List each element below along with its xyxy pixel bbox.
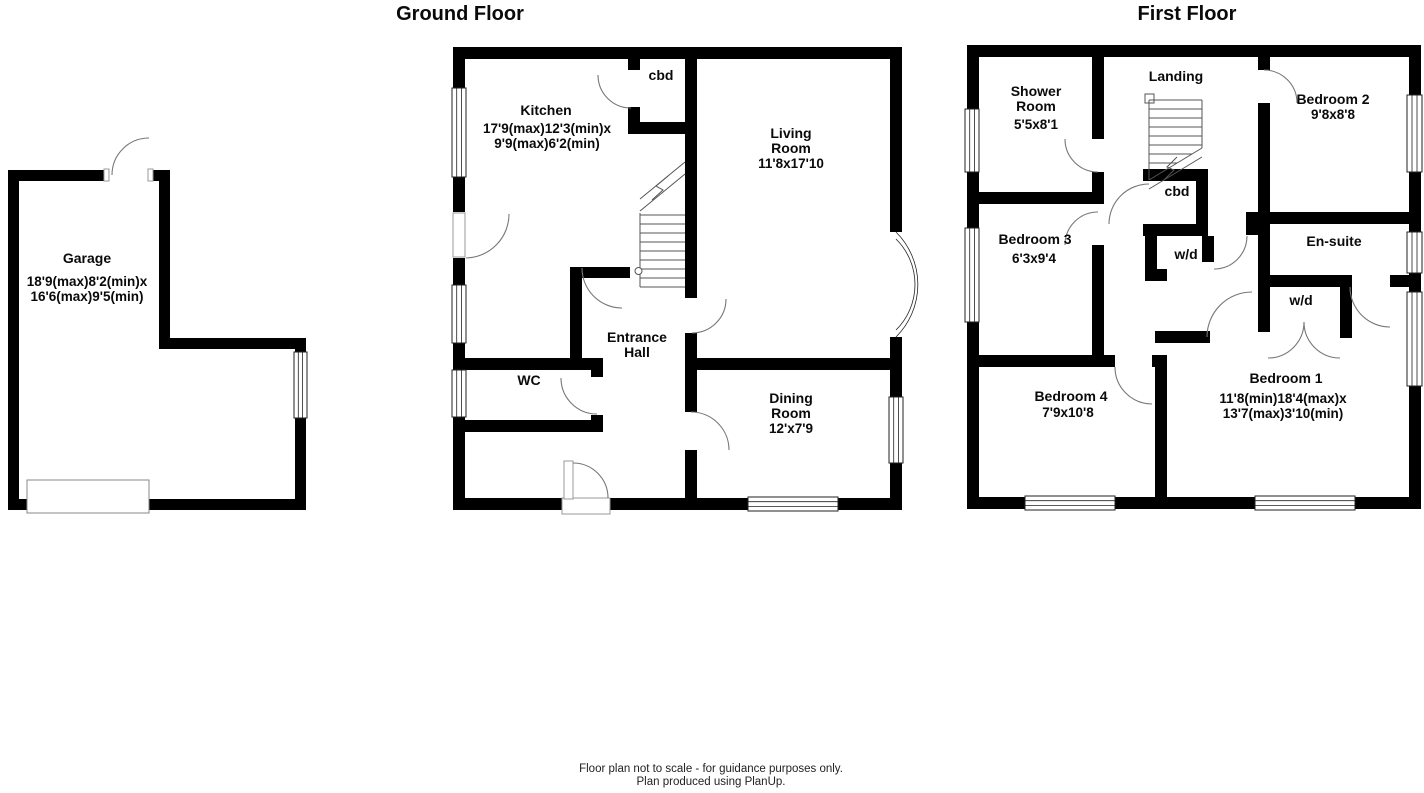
door-arc-front-door — [573, 463, 608, 498]
ground-floor-plan: Kitchen 17'9(max)12'3(min)x 9'9(max)6'2(… — [452, 47, 918, 514]
door-arc-living-room — [692, 299, 726, 333]
window — [889, 397, 903, 463]
door-arc-cbd — [598, 75, 631, 108]
living-room-dims: 11'8x17'10 — [758, 156, 824, 171]
window — [1255, 496, 1355, 510]
window — [965, 228, 979, 322]
garage-walls — [8, 170, 306, 510]
door-arc-ensuite — [1350, 287, 1390, 327]
dining-room-label-1: Dining — [769, 390, 813, 406]
stair-newel — [635, 268, 642, 275]
window — [748, 497, 838, 511]
ensuite-label: En-suite — [1306, 233, 1361, 249]
wd-landing-label: w/d — [1173, 246, 1197, 262]
door-arc-cbd-first — [1109, 184, 1149, 224]
door-arc-side-entrance — [466, 214, 509, 258]
garage-label: Garage — [63, 250, 111, 266]
door-jamb — [148, 169, 153, 181]
garage-dims-1: 18'9(max)8'2(min)x — [27, 274, 148, 289]
door-arc-wc — [561, 378, 597, 414]
door-arc-bedroom2 — [1264, 70, 1297, 103]
window — [452, 88, 466, 177]
bedroom3-label: Bedroom 3 — [998, 231, 1071, 247]
door-arc-bedroom1 — [1207, 292, 1252, 337]
dining-room-dims: 12'x7'9 — [769, 421, 813, 436]
bedroom4-dims: 7'9x10'8 — [1042, 405, 1094, 420]
window — [1407, 95, 1422, 172]
first-floor-title: First Floor — [1138, 3, 1237, 25]
bedroom1-dims-2: 13'7(max)3'10(min) — [1223, 406, 1343, 421]
entrance-hall-label-1: Entrance — [607, 329, 667, 345]
footer-credit: Plan produced using PlanUp. — [637, 776, 786, 788]
stair-direction-break — [652, 176, 668, 200]
window — [1025, 496, 1115, 510]
window — [294, 352, 307, 418]
bedroom1-dims-1: 11'8(min)18'4(max)x — [1219, 391, 1347, 406]
dining-room-label-2: Room — [771, 405, 811, 421]
garage-vehicle-door — [27, 480, 149, 513]
shower-room-label-1: Shower — [1011, 83, 1062, 99]
bedroom1-label: Bedroom 1 — [1249, 370, 1322, 386]
window — [452, 370, 466, 417]
garage-door-opening — [107, 169, 151, 182]
first-floor-plan: Landing Shower Room 5'5x8'1 Bedroom 2 9'… — [965, 45, 1422, 510]
wc-label: WC — [517, 372, 540, 388]
bedroom2-dims: 9'8x8'8 — [1311, 107, 1355, 122]
front-door-leaf — [564, 461, 573, 499]
footer-disclaimer: Floor plan not to scale - for guidance p… — [579, 763, 843, 775]
garage-plan: Garage 18'9(max)8'2(min)x 16'6(max)9'5(m… — [8, 138, 307, 513]
ground-floor-title: Ground Floor — [396, 3, 524, 25]
cbd-label: cbd — [649, 67, 674, 83]
bedroom3-dims: 6'3x9'4 — [1012, 251, 1056, 266]
entrance-hall-label-2: Hall — [624, 344, 650, 360]
kitchen-label: Kitchen — [520, 102, 571, 118]
door-jamb — [104, 169, 109, 181]
bedroom2-label: Bedroom 2 — [1296, 91, 1369, 107]
shower-room-dims: 5'5x8'1 — [1014, 117, 1058, 132]
cbd-first-label: cbd — [1165, 183, 1190, 199]
window — [965, 109, 979, 172]
door-arc-shower-room — [1065, 139, 1098, 172]
living-room-label-1: Living — [770, 125, 811, 141]
shower-room-label-2: Room — [1016, 98, 1056, 114]
kitchen-dims-2: 9'9(max)6'2(min) — [494, 136, 599, 151]
side-door-leaf — [453, 213, 465, 257]
bedroom4-label: Bedroom 4 — [1034, 388, 1107, 404]
door-arc-wd-bifold-left — [1268, 322, 1304, 358]
window — [452, 285, 466, 343]
bay-window — [888, 232, 918, 337]
landing-label: Landing — [1149, 68, 1203, 84]
wd-bedroom1-label: w/d — [1288, 292, 1312, 308]
door-arc-wd-bifold-right — [1304, 322, 1340, 358]
staircase-ground-floor — [635, 162, 685, 287]
window — [1407, 292, 1422, 386]
kitchen-dims-1: 17'9(max)12'3(min)x — [483, 121, 611, 136]
door-arc-bedroom4 — [1115, 367, 1152, 404]
door-arc-dining-room — [691, 412, 729, 450]
front-porch — [562, 498, 610, 514]
garage-dims-2: 16'6(max)9'5(min) — [31, 289, 144, 304]
floor-plan-image: Ground Floor First Floor Garage 18'9(max… — [0, 0, 1424, 793]
door-arc-wd-landing — [1214, 236, 1247, 269]
living-room-label-2: Room — [771, 140, 811, 156]
window — [1407, 232, 1422, 273]
